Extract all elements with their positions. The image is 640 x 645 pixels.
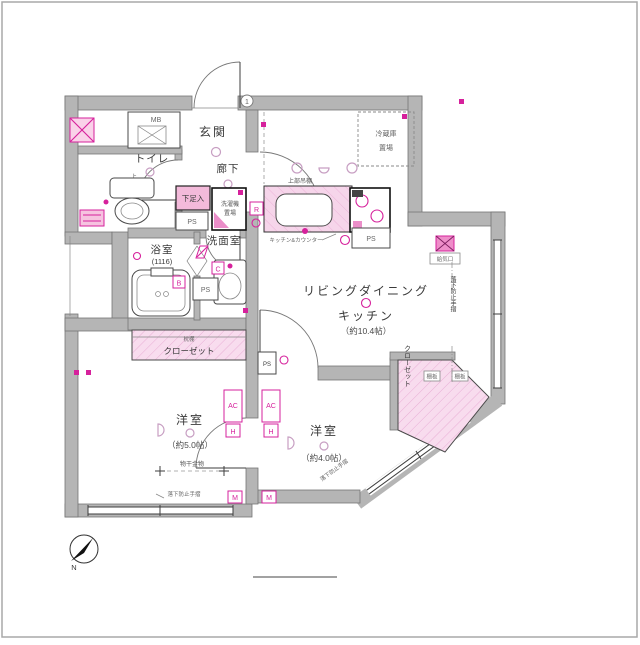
washing-machine-space: 洗濯機 置場 xyxy=(212,188,246,230)
bedroom-south-size: （約4.0帖） xyxy=(301,453,347,463)
compass-north-label: N xyxy=(71,563,76,572)
closet-west: 枕棚 クローゼット xyxy=(132,330,246,360)
symbol-r: R xyxy=(254,207,259,214)
hook-label: H xyxy=(268,429,273,436)
toilet-label: トイレ xyxy=(135,153,170,165)
washer-label-2: 置場 xyxy=(224,209,236,217)
bedroom-west-size: （約5.0帖） xyxy=(167,440,213,450)
closet-west-shelf-label: 枕棚 xyxy=(183,335,195,343)
floor-plan-drawing: 枕棚 クローゼット 棚板 棚板 クローゼット 玄関 廊下 1 MB 下足 xyxy=(0,0,640,640)
outlet-icon xyxy=(261,122,266,127)
handrail-label-east: 落下防止手摺 xyxy=(449,275,456,313)
outlet-icon xyxy=(86,370,91,375)
symbol-c: C xyxy=(215,267,220,274)
symbol-b: B xyxy=(177,281,182,288)
outlet-icon xyxy=(459,99,464,104)
outlet-icon xyxy=(74,370,79,375)
bath-size: (1116) xyxy=(152,257,173,266)
closet-south-shelf-a: 棚板 xyxy=(426,373,438,381)
bedroom-west-label: 洋室 xyxy=(176,412,204,427)
pipe-space-label: PS xyxy=(263,362,271,368)
towel-rack-icon xyxy=(80,210,104,226)
closet-south-label: クローゼット xyxy=(404,345,412,387)
air-vent-label: 給気口 xyxy=(437,255,454,263)
paper-holder-icon xyxy=(104,200,109,205)
bedroom-south-label: 洋室 xyxy=(310,423,338,438)
ac-label: AC xyxy=(228,403,238,410)
laundry-hw-label: 物干金物 xyxy=(180,460,204,468)
meter-label: M xyxy=(232,495,238,502)
hanging-shelf-label: 上部吊棚 xyxy=(288,177,312,185)
meter-box-x-icon xyxy=(138,126,166,144)
closet-west-label: クローゼット xyxy=(163,346,214,356)
meter-label: M xyxy=(266,495,272,502)
ac-label: AC xyxy=(266,403,276,410)
shaft-x-icon xyxy=(70,118,94,142)
outlet-icon xyxy=(238,190,243,195)
air-vent-icon xyxy=(436,236,454,251)
fridge-label-2: 置場 xyxy=(379,143,393,152)
genkan-label: 玄関 xyxy=(199,124,227,139)
pipe-space-label: PS xyxy=(366,236,376,243)
hallway-label: 廊下 xyxy=(217,162,240,175)
pipe-space-label: PS xyxy=(201,287,211,294)
bath-label: 浴室 xyxy=(151,243,174,256)
shoe-box-label: 下足入 xyxy=(182,194,205,203)
unit-door-number: 1 xyxy=(245,99,249,106)
hook-label: H xyxy=(230,429,235,436)
stove-icon xyxy=(350,188,390,232)
fridge-label-1: 冷蔵庫 xyxy=(376,129,397,138)
bathtub-icon xyxy=(132,268,190,316)
washroom-label: 洗面室 xyxy=(207,234,242,247)
kitchen-counter-icon xyxy=(264,186,352,234)
ldk-label-1: リビングダイニング xyxy=(303,283,429,298)
handrail-label-west: 落下防止手摺 xyxy=(167,490,201,498)
washer-label-1: 洗濯機 xyxy=(221,200,239,208)
pipe-space-label: PS xyxy=(187,219,197,226)
kitchen-counter-label: キッチン&カウンター xyxy=(269,236,322,244)
closet-south-shelf-b: 棚板 xyxy=(454,373,466,381)
outlet-icon xyxy=(243,308,248,313)
ldk-label-2: キッチン xyxy=(338,309,394,323)
outlet-icon xyxy=(402,114,407,119)
ldk-size: （約10.4帖） xyxy=(341,326,392,336)
floor-plan-page: 枕棚 クローゼット 棚板 棚板 クローゼット 玄関 廊下 1 MB 下足 xyxy=(0,0,640,640)
meter-box-label: MB xyxy=(151,117,162,124)
